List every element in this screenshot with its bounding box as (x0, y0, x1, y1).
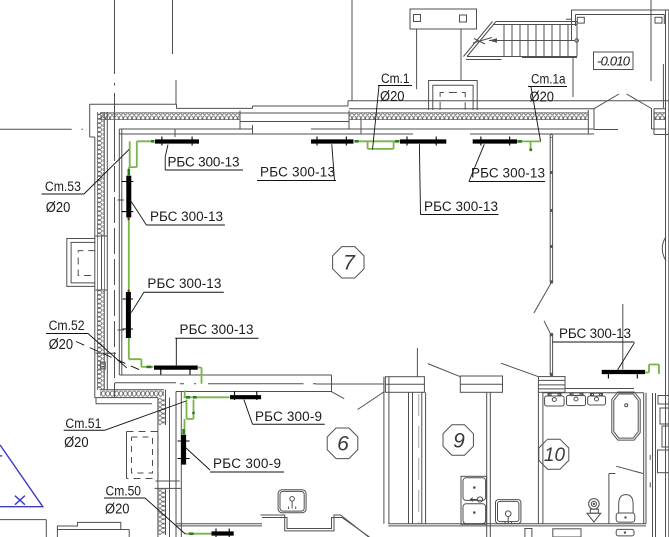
svg-text:Cm.52: Cm.52 (49, 318, 85, 333)
svg-text:7: 7 (343, 252, 356, 275)
svg-text:6: 6 (337, 433, 349, 456)
svg-text:РБС 300-9: РБС 300-9 (213, 456, 281, 471)
svg-text:Cm.1: Cm.1 (381, 71, 410, 86)
svg-text:РБС 300-13: РБС 300-13 (147, 276, 221, 291)
svg-text:9: 9 (453, 430, 465, 453)
svg-text:РБС 300-13: РБС 300-13 (260, 165, 335, 180)
svg-text:Cm.51: Cm.51 (65, 416, 101, 431)
svg-text:Ø20: Ø20 (105, 502, 130, 518)
svg-text:-0.010: -0.010 (597, 54, 631, 69)
svg-text:Cm.53: Cm.53 (45, 179, 81, 194)
svg-text:РБС 300-13: РБС 300-13 (150, 209, 223, 224)
svg-text:Cm.50: Cm.50 (106, 484, 142, 499)
svg-text:РБС 300-9: РБС 300-9 (255, 409, 322, 424)
svg-text:РБС 300-13: РБС 300-13 (559, 326, 631, 341)
svg-text:Ø20: Ø20 (530, 90, 555, 106)
svg-text:Ø20: Ø20 (380, 89, 405, 105)
svg-text:Ø20: Ø20 (49, 337, 74, 353)
svg-text:Ø20: Ø20 (64, 435, 89, 451)
svg-text:РБС 300-13: РБС 300-13 (471, 166, 545, 181)
svg-text:РБС 300-13: РБС 300-13 (180, 322, 254, 337)
svg-text:РБС 300-13: РБС 300-13 (424, 199, 498, 214)
svg-text:РБС 300-13: РБС 300-13 (168, 155, 240, 170)
svg-text:Cm.1a: Cm.1a (531, 72, 566, 87)
svg-text:Ø20: Ø20 (46, 200, 71, 216)
svg-text:10: 10 (544, 445, 566, 466)
